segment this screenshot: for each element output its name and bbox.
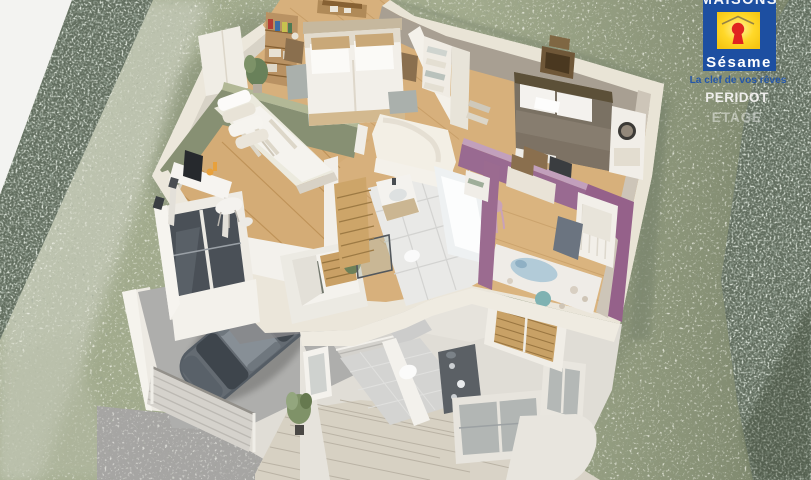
svg-text:La clef de vos rêves: La clef de vos rêves — [690, 75, 787, 86]
svg-text:PERIDOT: PERIDOT — [705, 90, 769, 105]
svg-text:Sésame: Sésame — [706, 54, 772, 71]
svg-text:ETAGE: ETAGE — [712, 110, 763, 125]
svg-text:MAISONS: MAISONS — [700, 0, 778, 8]
